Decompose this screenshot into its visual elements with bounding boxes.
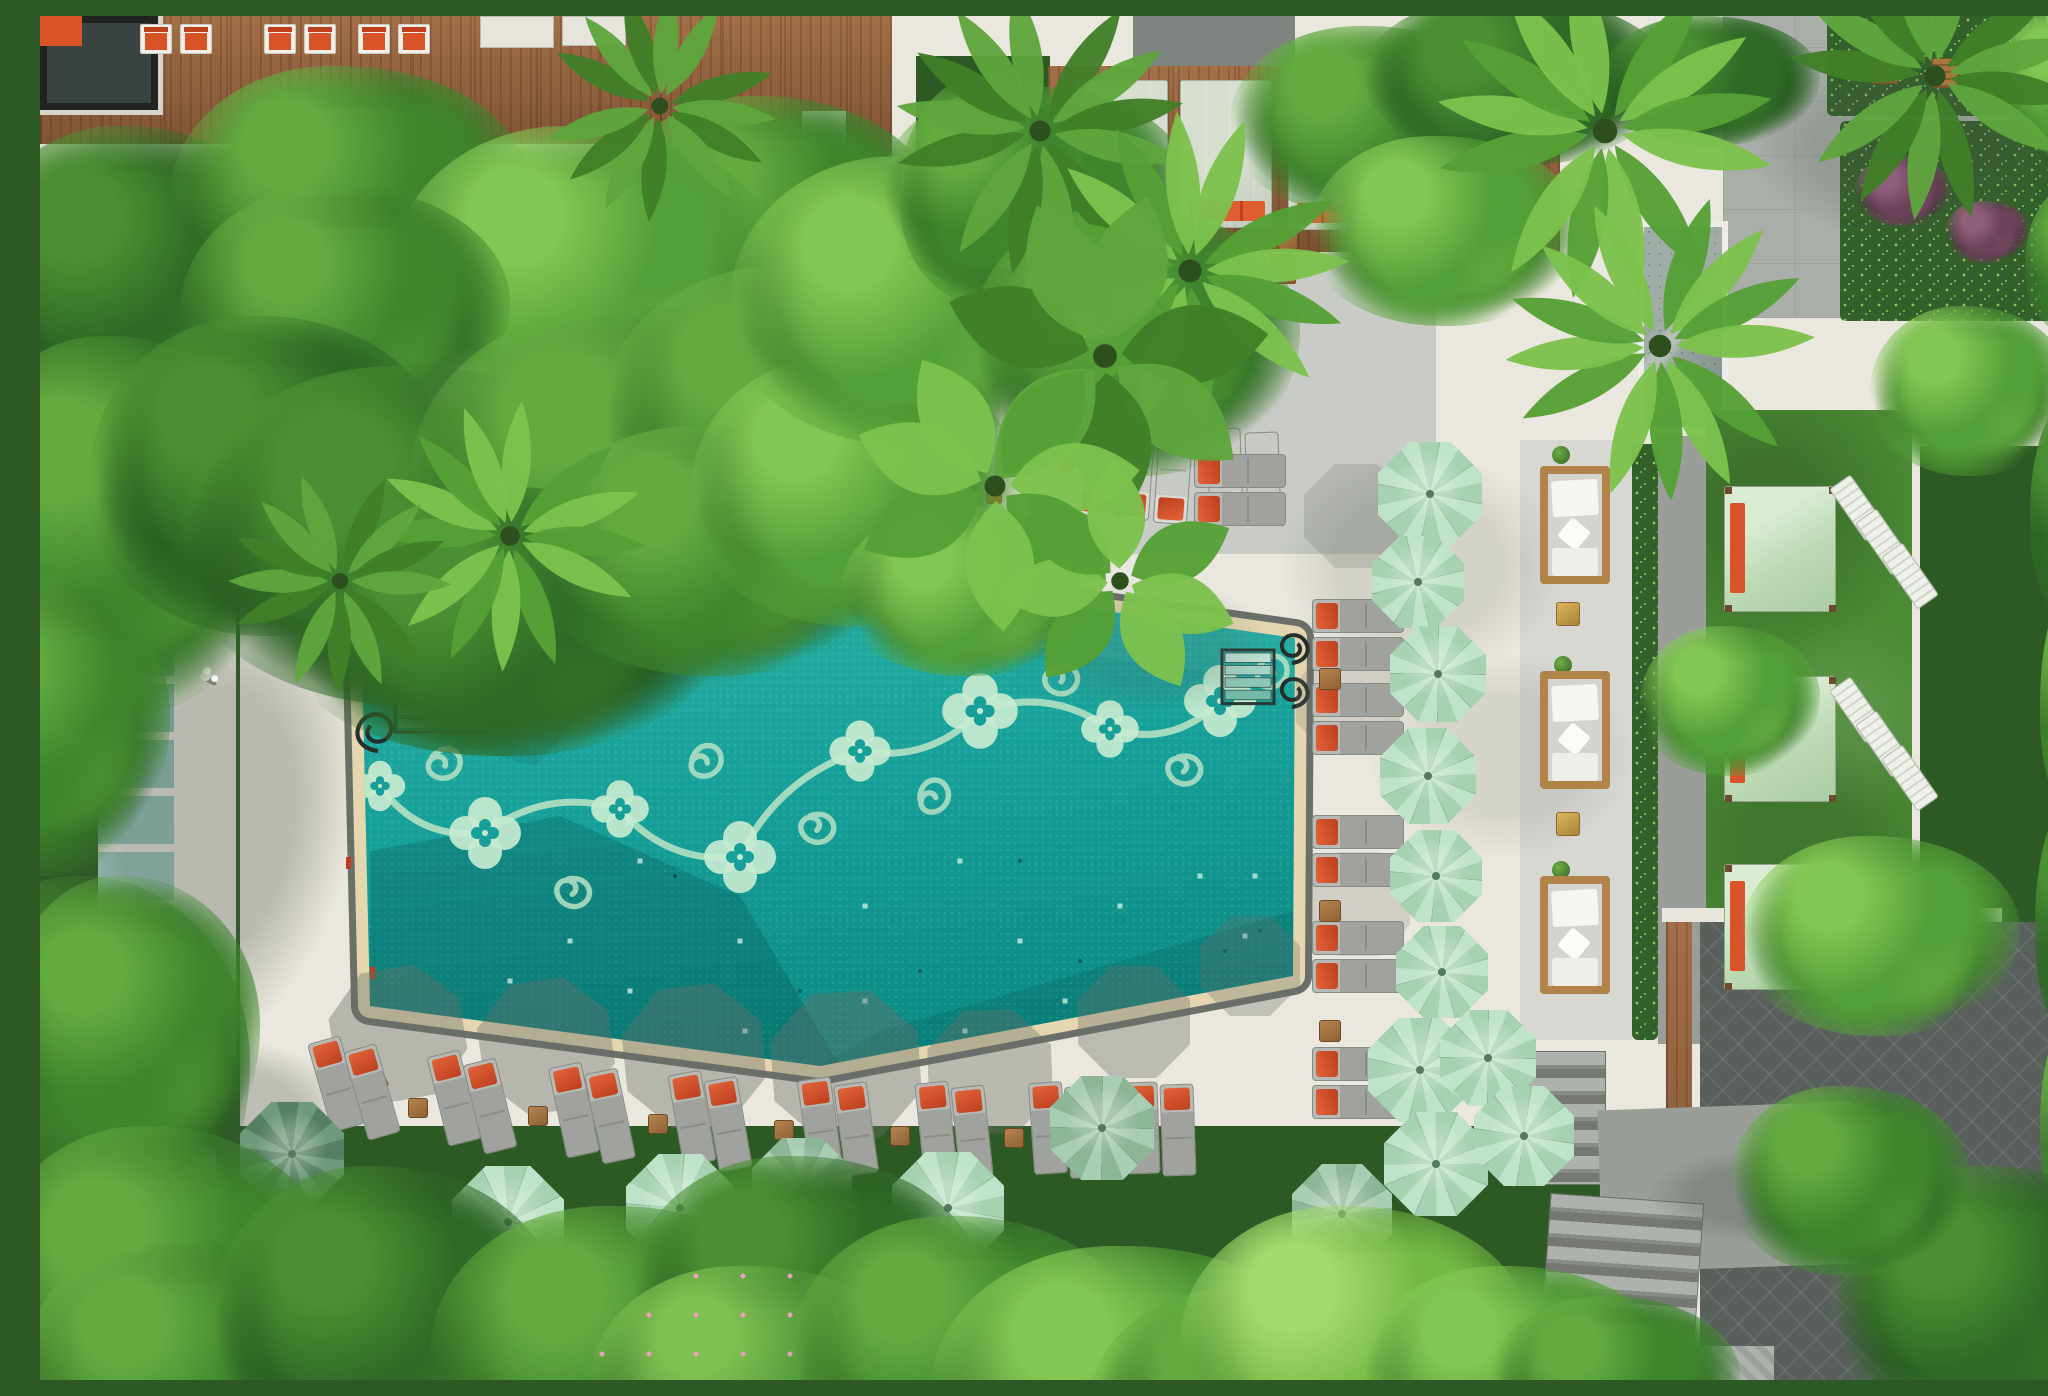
chair-cushion-icon <box>145 33 167 50</box>
lounger-divider <box>1365 925 1367 951</box>
chair-cushion-icon <box>269 33 291 50</box>
chair-back-icon <box>268 27 292 32</box>
parasol-shadow <box>1078 966 1190 1078</box>
sun-lounger <box>1312 815 1404 849</box>
lounger-divider <box>844 1134 870 1140</box>
sun-lounger <box>1312 921 1404 955</box>
sofa-cushion <box>1551 684 1599 722</box>
parasol-pole-icon <box>1414 578 1422 586</box>
lounger-divider <box>716 1129 742 1135</box>
parasol-pole-icon <box>1520 1132 1528 1140</box>
parasol <box>1474 1086 1574 1186</box>
wooden-side-table <box>1319 668 1341 690</box>
lounger-divider <box>808 1129 834 1135</box>
lounger-divider <box>924 1134 950 1139</box>
gold-side-table <box>1556 602 1580 626</box>
parasol-pole-icon <box>1432 872 1440 880</box>
lounger-divider <box>1365 857 1367 883</box>
tree-canopy <box>1640 626 1820 776</box>
cabana-post-icon <box>1829 605 1836 612</box>
wooden-side-table <box>408 1098 428 1118</box>
parasol-pole-icon <box>1426 490 1434 498</box>
lounger-cushion-icon <box>837 1086 866 1111</box>
red-deck-chair <box>264 24 296 54</box>
lounger-cushion-icon <box>1316 963 1338 989</box>
wooden-side-table <box>1319 1020 1341 1042</box>
parasol-pole-icon <box>1438 968 1446 976</box>
lounger-cushion-icon <box>467 1062 498 1090</box>
red-deck-chair <box>358 24 390 54</box>
tree-canopy <box>1730 1086 1970 1276</box>
cabana-post-icon <box>1829 795 1836 802</box>
lounger-cushion-icon <box>553 1066 583 1093</box>
lounger-cushion-icon <box>672 1074 701 1100</box>
parasol <box>1390 830 1482 922</box>
red-planter <box>40 16 82 46</box>
lounger-divider <box>1365 641 1367 667</box>
sun-lounger <box>1159 1083 1196 1176</box>
sofa-cushion <box>1552 548 1598 576</box>
wooden-side-table <box>528 1106 548 1126</box>
parasol-shadow <box>1200 916 1300 1016</box>
lounger-cushion-icon <box>312 1040 343 1068</box>
lounger-divider <box>1365 725 1367 751</box>
lounger-cushion-icon <box>955 1089 983 1114</box>
lounger-divider <box>1365 963 1367 989</box>
cabana-post-icon <box>1725 605 1732 612</box>
cabana-post-icon <box>1725 865 1732 872</box>
sofa-cushion <box>1552 958 1598 986</box>
red-deck-chair <box>140 24 172 54</box>
lounger-cushion-icon <box>1316 925 1338 951</box>
chair-back-icon <box>402 27 426 32</box>
chair-back-icon <box>308 27 332 32</box>
red-deck-chair <box>180 24 212 54</box>
palm-tree <box>225 466 455 696</box>
lounger-divider <box>1165 1137 1191 1140</box>
lounger-cushion-icon <box>348 1048 379 1076</box>
lounger-divider <box>1365 819 1367 845</box>
lounger-divider <box>1365 687 1367 713</box>
lounger-divider <box>1365 603 1367 629</box>
cabana-post-icon <box>1725 983 1732 990</box>
chair-back-icon <box>144 27 168 32</box>
lounger-cushion-icon <box>589 1072 619 1099</box>
lounger-cushion-icon <box>1316 603 1338 629</box>
lounger-divider <box>680 1123 706 1129</box>
lounger-cushion-icon <box>1316 1051 1338 1077</box>
resort-pool-aerial-photo: Aerial drone photograph of a tropical re… <box>40 16 2048 1380</box>
lounger-divider <box>443 1102 469 1110</box>
red-deck-chair <box>304 24 336 54</box>
parasol <box>1390 626 1486 722</box>
chair-cushion-icon <box>363 33 385 50</box>
cabana-post-icon <box>1829 677 1836 684</box>
chair-cushion-icon <box>403 33 425 50</box>
tree-canopy <box>1870 306 2048 476</box>
banana-plant <box>995 456 1245 706</box>
chair-cushion-icon <box>185 33 207 50</box>
sofa-cushion <box>1552 753 1598 781</box>
chair-back-icon <box>184 27 208 32</box>
wooden-side-table <box>774 1120 794 1140</box>
parasol-pole-icon <box>1432 1160 1440 1168</box>
lounger-divider <box>325 1087 351 1096</box>
lounger-divider <box>599 1120 625 1127</box>
gold-side-table <box>1556 812 1580 836</box>
lounger-cushion-icon <box>919 1085 947 1110</box>
parasol-pole-icon <box>1434 670 1442 678</box>
lounger-divider <box>1365 1051 1367 1077</box>
lounger-cushion-icon <box>431 1054 462 1082</box>
wooden-side-table <box>1319 900 1341 922</box>
parasol <box>1372 536 1464 628</box>
parasol-pole-icon <box>1424 772 1432 780</box>
lounger-cushion-icon <box>1316 819 1338 845</box>
lounger-cushion-icon <box>1316 687 1338 713</box>
lounger-cushion-icon <box>1316 1089 1338 1115</box>
chair-back-icon <box>362 27 386 32</box>
cabana-post-icon <box>1725 795 1732 802</box>
parasol-pole-icon <box>1098 1124 1106 1132</box>
outdoor-sofa-daybed <box>1540 671 1610 789</box>
lounger-cushion-icon <box>1164 1088 1191 1111</box>
lounger-divider <box>1365 1089 1367 1115</box>
lounger-cushion-icon <box>708 1080 737 1106</box>
cabana-mattress-icon <box>1730 503 1745 593</box>
parasol-pole-icon <box>1416 1066 1424 1074</box>
palm-tree <box>1785 16 2048 226</box>
lounger-cushion-icon <box>1316 641 1338 667</box>
sofa-cushion <box>1551 889 1599 927</box>
tree-canopy <box>1740 836 2020 1036</box>
parasol-pole-icon <box>288 1150 296 1158</box>
lounger-divider <box>960 1138 986 1143</box>
red-deck-chair <box>398 24 430 54</box>
lounger-cushion-icon <box>1316 725 1338 751</box>
parasol <box>1380 728 1476 824</box>
palm-tree <box>1500 186 1820 506</box>
wooden-side-table <box>648 1114 668 1134</box>
outdoor-sofa-daybed <box>1540 876 1610 994</box>
palm-tree <box>540 16 780 226</box>
lounger-divider <box>479 1110 505 1118</box>
wooden-side-table <box>890 1126 910 1146</box>
chair-cushion-icon <box>309 33 331 50</box>
parasol-pole-icon <box>1484 1054 1492 1062</box>
wooden-side-table <box>1004 1128 1024 1148</box>
lounger-cushion-icon <box>1316 857 1338 883</box>
lounger-cushion-icon <box>801 1081 830 1106</box>
sun-lounger <box>1312 959 1404 993</box>
parasol <box>1396 926 1488 1018</box>
lounger-divider <box>563 1114 589 1121</box>
lounger-divider <box>361 1095 387 1104</box>
